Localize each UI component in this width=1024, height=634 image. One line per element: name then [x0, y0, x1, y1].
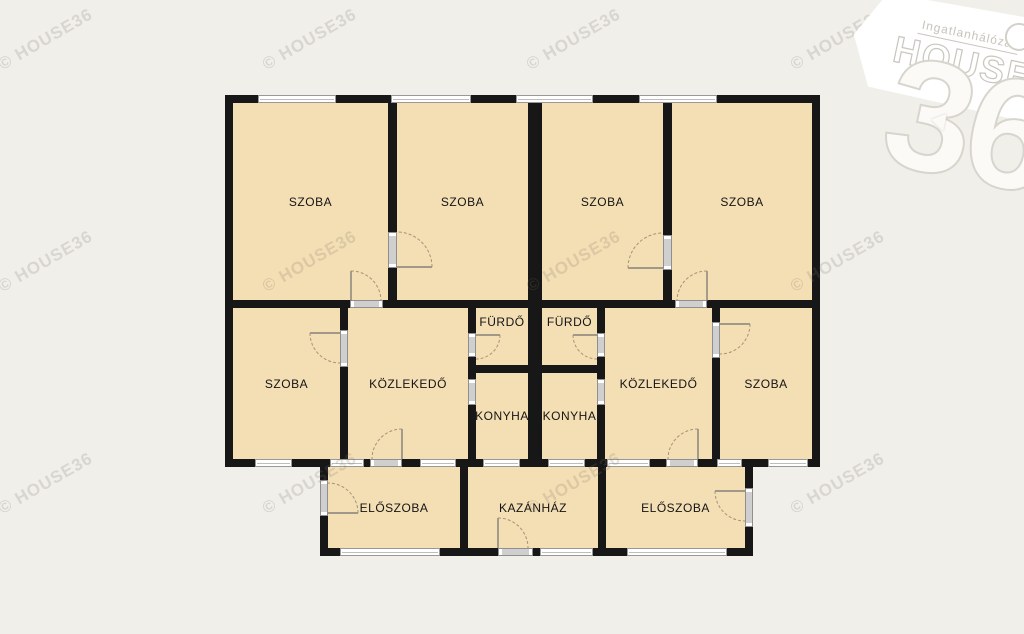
room-label: SZOBA [265, 377, 308, 391]
room-szoba-top-1: SZOBA [233, 103, 388, 300]
room-furdo-left: FÜRDŐ [476, 308, 528, 365]
room-label: SZOBA [289, 195, 332, 209]
door-kozlekedo-eloszoba-right [666, 459, 698, 467]
room-kazanhaz: KAZÁNHÁZ [468, 467, 598, 548]
door-entry-right [745, 488, 753, 527]
logo-number: 36 [872, 31, 1024, 220]
floorplan: SZOBA SZOBA SZOBA SZOBA SZOBA KÖZLEKEDŐ … [225, 95, 820, 556]
room-szoba-top-3: SZOBA [542, 103, 663, 300]
window [717, 459, 742, 467]
room-kozlekedo-right: KÖZLEKEDŐ [605, 308, 712, 459]
room-szoba-mid-right: SZOBA [720, 308, 812, 459]
room-szoba-top-4: SZOBA [672, 103, 812, 300]
floorplan-canvas: SZOBA SZOBA SZOBA SZOBA SZOBA KÖZLEKEDŐ … [0, 0, 1024, 634]
window [639, 95, 717, 103]
room-kozlekedo-left: KÖZLEKEDŐ [348, 308, 468, 459]
watermark-text: © HOUSE36 [787, 5, 888, 75]
watermark-text: © HOUSE36 [259, 5, 360, 75]
window [548, 459, 585, 467]
house36-logo: Ingatlanhálózat HOUSE 36 [794, 0, 1024, 250]
room-label: KÖZLEKEDŐ [620, 377, 698, 391]
window [607, 459, 650, 467]
watermark-text: © HOUSE36 [523, 5, 624, 75]
room-label: SZOBA [581, 195, 624, 209]
room-label: ELŐSZOBA [641, 501, 710, 515]
logo-network-name: Ingatlanhálózat [917, 17, 1021, 55]
door-kozlekedo-szoba1 [350, 300, 383, 308]
door-kozlekedo-eloszoba-left [370, 459, 402, 467]
door-szoba3-szoba4 [663, 235, 672, 270]
window [391, 95, 471, 103]
room-label: KONYHA [543, 409, 597, 423]
room-label: KÖZLEKEDŐ [369, 377, 447, 391]
window [768, 459, 808, 467]
room-eloszoba-left: ELŐSZOBA [328, 467, 460, 548]
room-konyha-right: KONYHA [542, 373, 597, 459]
window [420, 459, 456, 467]
door-konyha-right [597, 379, 605, 405]
room-szoba-mid-left: SZOBA [233, 308, 340, 459]
room-label: FÜRDŐ [479, 315, 524, 329]
room-label: KONYHA [475, 409, 529, 423]
room-szoba-top-2: SZOBA [397, 103, 528, 300]
window [255, 459, 292, 467]
door-szoba1-szoba2 [388, 232, 397, 268]
door-kozlekedo-szoba4 [675, 300, 707, 308]
window [340, 548, 440, 556]
door-entry-left [320, 480, 328, 516]
door-konyha-left [468, 379, 476, 405]
logo-triangle-icon [929, 111, 946, 132]
room-label: KAZÁNHÁZ [499, 501, 567, 515]
watermark-text: © HOUSE36 [0, 449, 96, 519]
window [483, 459, 520, 467]
room-label: SZOBA [720, 195, 763, 209]
logo-brand-name: HOUSE [890, 30, 1024, 99]
window [516, 95, 593, 103]
room-label: SZOBA [744, 377, 787, 391]
door-furdo-left [468, 333, 476, 357]
room-eloszoba-right: ELŐSZOBA [606, 467, 745, 548]
door-szoba-mid-right [712, 322, 720, 358]
window [627, 548, 727, 556]
room-label: ELŐSZOBA [360, 501, 429, 515]
door-furdo-right [597, 333, 605, 357]
window [540, 548, 593, 556]
window [330, 459, 364, 467]
watermark-text: © HOUSE36 [0, 5, 96, 75]
room-konyha-left: KONYHA [476, 373, 528, 459]
window [258, 95, 336, 103]
room-label: SZOBA [441, 195, 484, 209]
door-szoba-mid-left [340, 330, 348, 367]
watermark-text: © HOUSE36 [0, 227, 96, 297]
tag-hole-icon [1002, 20, 1024, 53]
room-furdo-right: FÜRDŐ [542, 308, 597, 365]
door-kazanhaz-entry [498, 548, 533, 556]
house36-tag-shape: Ingatlanhálózat HOUSE [843, 0, 1024, 126]
room-label: FÜRDŐ [547, 315, 592, 329]
